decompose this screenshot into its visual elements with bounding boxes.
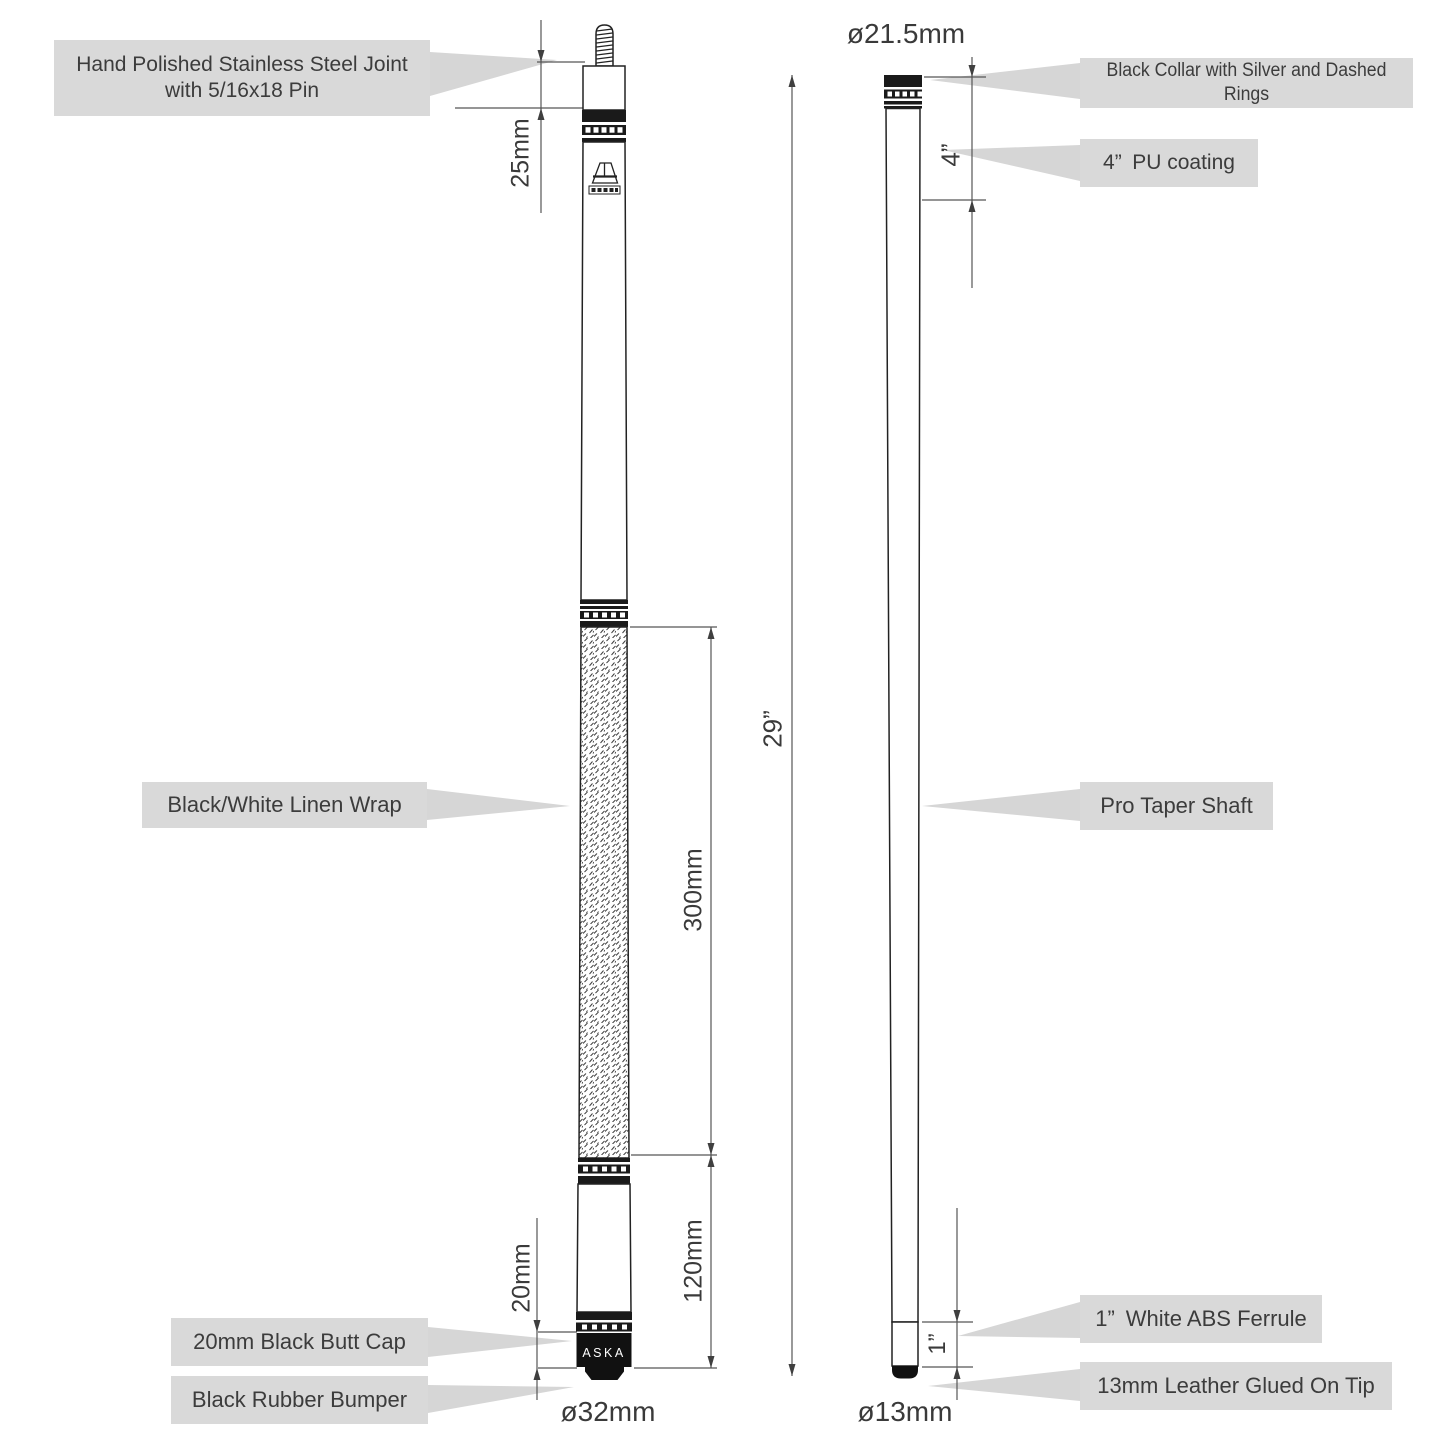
wrap-label-text: Black/White Linen Wrap <box>167 791 401 819</box>
dim-overall-length: 29” <box>758 710 789 748</box>
diagram-drawing: ASKA <box>0 0 1445 1445</box>
pu-label-text: 4” PU coating <box>1103 150 1235 176</box>
dim-wrap-length: 300mm <box>680 848 709 931</box>
wrap-bottom-rings <box>578 1158 630 1184</box>
leather-tip <box>892 1366 918 1379</box>
dim-joint-diameter: ø21.5mm <box>847 18 965 50</box>
callout-tail-joint <box>430 52 557 96</box>
callout-butt-cap-label: 20mm Black Butt Cap <box>171 1318 428 1366</box>
dim-butt-diameter: ø32mm <box>561 1396 656 1428</box>
linen-wrap <box>579 627 629 1158</box>
callout-wrap-label: Black/White Linen Wrap <box>142 782 427 828</box>
dim-ferrule-length: 1” <box>924 1333 952 1354</box>
callout-tip-label: 13mm Leather Glued On Tip <box>1080 1362 1392 1410</box>
joint-pin <box>596 25 613 66</box>
callout-pu-label: 4” PU coating <box>1080 139 1258 187</box>
shaft-body <box>886 109 920 1323</box>
joint-rings <box>582 110 626 142</box>
callout-ferrule-label: 1” White ABS Ferrule <box>1080 1295 1322 1343</box>
forearm <box>581 142 627 600</box>
wrap-top-rings <box>580 600 628 627</box>
bumper-label-text: Black Rubber Bumper <box>192 1386 407 1414</box>
joint-collar <box>583 66 625 110</box>
callout-tail-wrap <box>427 789 570 820</box>
rubber-bumper <box>585 1367 624 1380</box>
ferrule-label-text: 1” White ABS Ferrule <box>1095 1305 1307 1333</box>
butt-section: ASKA <box>576 25 632 1380</box>
callout-bumper-label: Black Rubber Bumper <box>171 1376 428 1424</box>
butt-sleeve <box>577 1184 631 1312</box>
shaft-label-text: Pro Taper Shaft <box>1100 792 1252 820</box>
tip-label-text: 13mm Leather Glued On Tip <box>1097 1372 1375 1400</box>
ferrule <box>892 1322 918 1366</box>
dim-butt-cap-length: 20mm <box>508 1243 537 1312</box>
dim-joint-length: 25mm <box>507 118 536 187</box>
shaft-collar-rings <box>884 75 922 109</box>
callout-tail-collar <box>930 63 1080 99</box>
dim-tip-diameter: ø13mm <box>858 1396 953 1428</box>
butt-cap-label-text: 20mm Black Butt Cap <box>193 1328 406 1356</box>
butt-cap-rings <box>576 1312 632 1332</box>
collar-label-text: Black Collar with Silver and Dashed Ring… <box>1092 59 1402 107</box>
callout-shaft-label: Pro Taper Shaft <box>1080 782 1273 830</box>
dim-pu-length: 4” <box>936 143 967 166</box>
shaft-section <box>884 75 922 1379</box>
callout-tails <box>427 52 1080 1413</box>
butt-cap-brand-text: ASKA <box>582 1346 625 1360</box>
callout-tail-ferrule <box>958 1302 1080 1338</box>
callout-joint-label: Hand Polished Stainless Steel Jointwith … <box>54 40 430 116</box>
callout-tail-bumper <box>428 1385 574 1413</box>
joint-label-text: Hand Polished Stainless Steel Jointwith … <box>76 52 408 105</box>
cue-diagram: ASKA Hand Polished Stainless <box>0 0 1445 1445</box>
callout-tail-shaft <box>922 789 1080 821</box>
callout-collar-label: Black Collar with Silver and Dashed Ring… <box>1080 58 1413 108</box>
dim-sleeve-length: 120mm <box>680 1219 709 1302</box>
